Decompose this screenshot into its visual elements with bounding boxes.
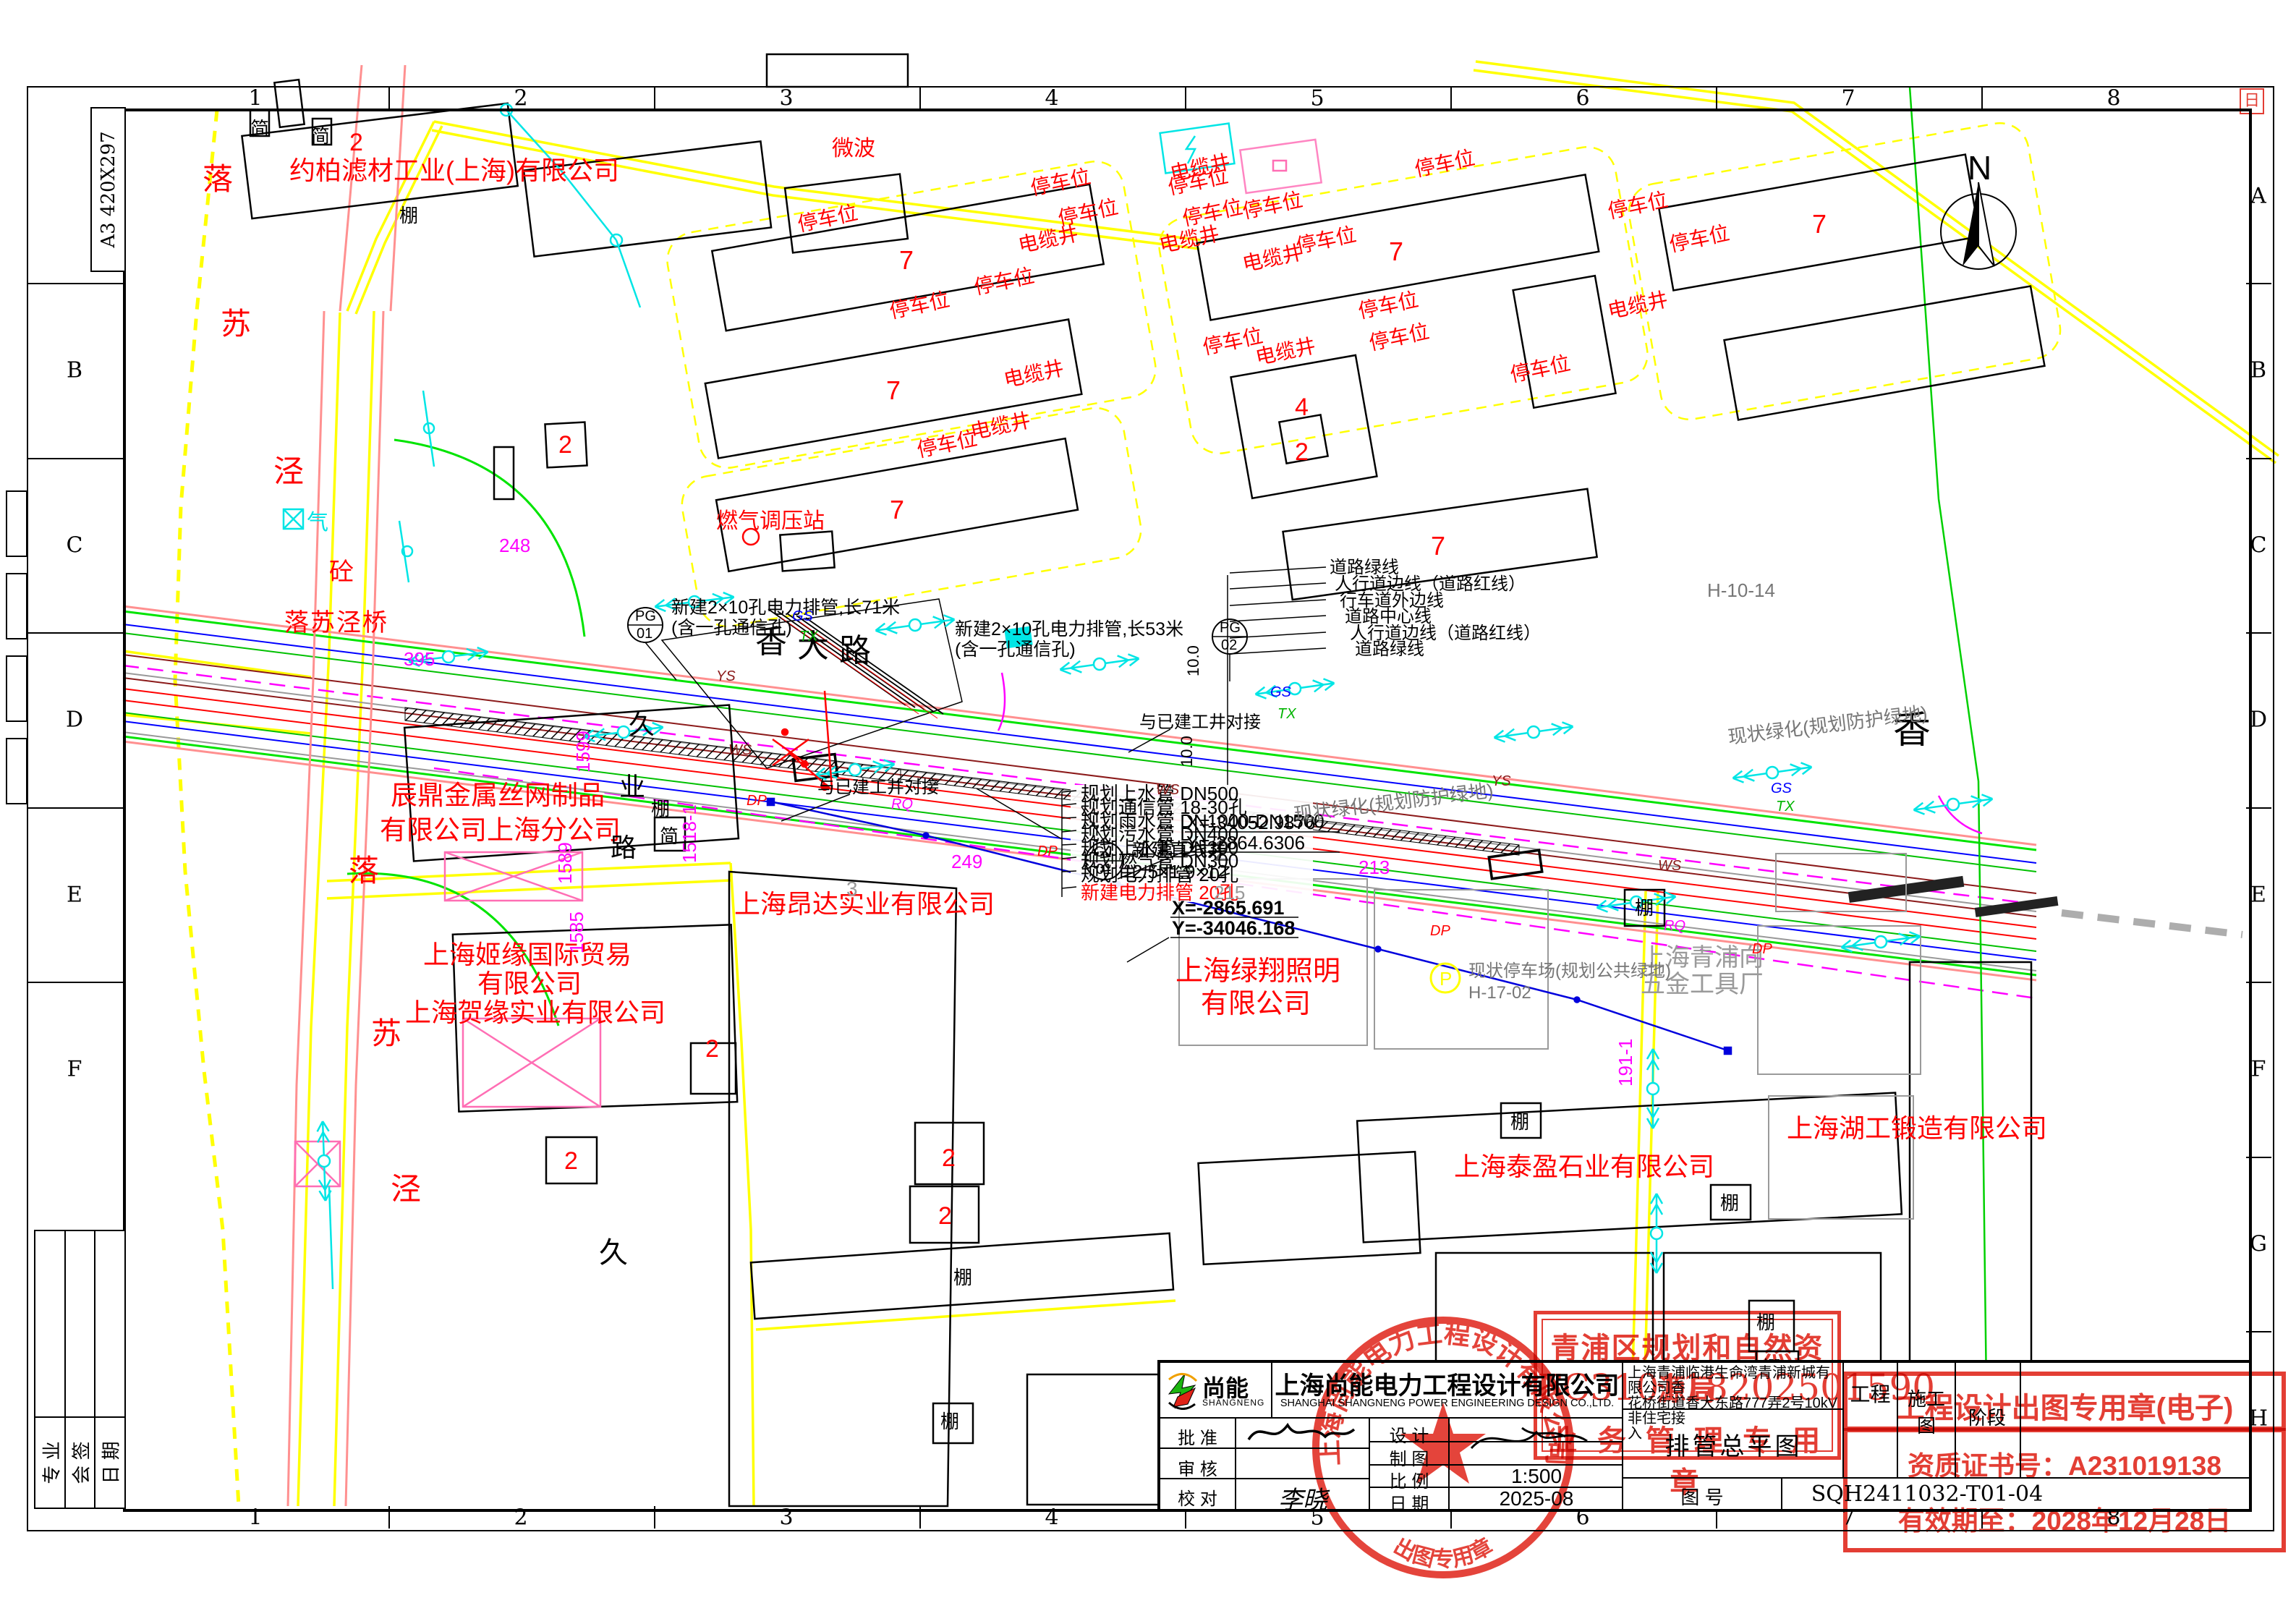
- sheet-size-label: A3 420X297: [98, 131, 119, 247]
- drawing-sheet: 约柏滤材工业(上海)有限公司 辰鼎金属丝网制品 有限公司上海分公司 上海姬缘国际…: [0, 0, 2296, 1624]
- cert-text: 资质证书号：A231019138: [1848, 1444, 2282, 1483]
- logo-sub: SHANGNENG: [1202, 1398, 1264, 1408]
- company-round-seal: 上海尚能电力工程设计有限公司 出图专用章: [1302, 1306, 1584, 1589]
- seal-star: [1400, 1403, 1486, 1484]
- signoff-date: 日 期: [95, 1418, 124, 1508]
- review-label: 审 核: [1160, 1455, 1235, 1480]
- inner-border: [123, 109, 2252, 1512]
- signoff-table: 专 业 会 签 日 期: [34, 1230, 126, 1509]
- signoff-label: 日 期: [96, 1441, 123, 1484]
- eseal-text: 工程设计出图专用章(电子): [1848, 1385, 2282, 1427]
- sheet-size-box: A3 420X297: [90, 107, 126, 272]
- signoff-label: 专 业: [37, 1441, 64, 1484]
- signoff-label: 会 签: [67, 1441, 93, 1484]
- cert-stamp-box: 资质证书号：A231019138 有效期至：2028年12月28日: [1843, 1428, 2286, 1552]
- signoff-major: 专 业: [35, 1418, 65, 1508]
- validity-text: 有效期至：2028年12月28日: [1848, 1499, 2282, 1538]
- signoff-countersign: 会 签: [65, 1418, 95, 1508]
- eseal-stamp-box: 工程设计出图专用章(电子): [1843, 1372, 2286, 1431]
- corner-stamp-mark: 日: [2240, 88, 2264, 114]
- shangneng-logo-icon: [1166, 1372, 1198, 1410]
- check-label: 校 对: [1160, 1484, 1235, 1510]
- approve-label: 批 准: [1160, 1424, 1235, 1449]
- company-logo: 尚能 SHANGNENG: [1165, 1369, 1272, 1413]
